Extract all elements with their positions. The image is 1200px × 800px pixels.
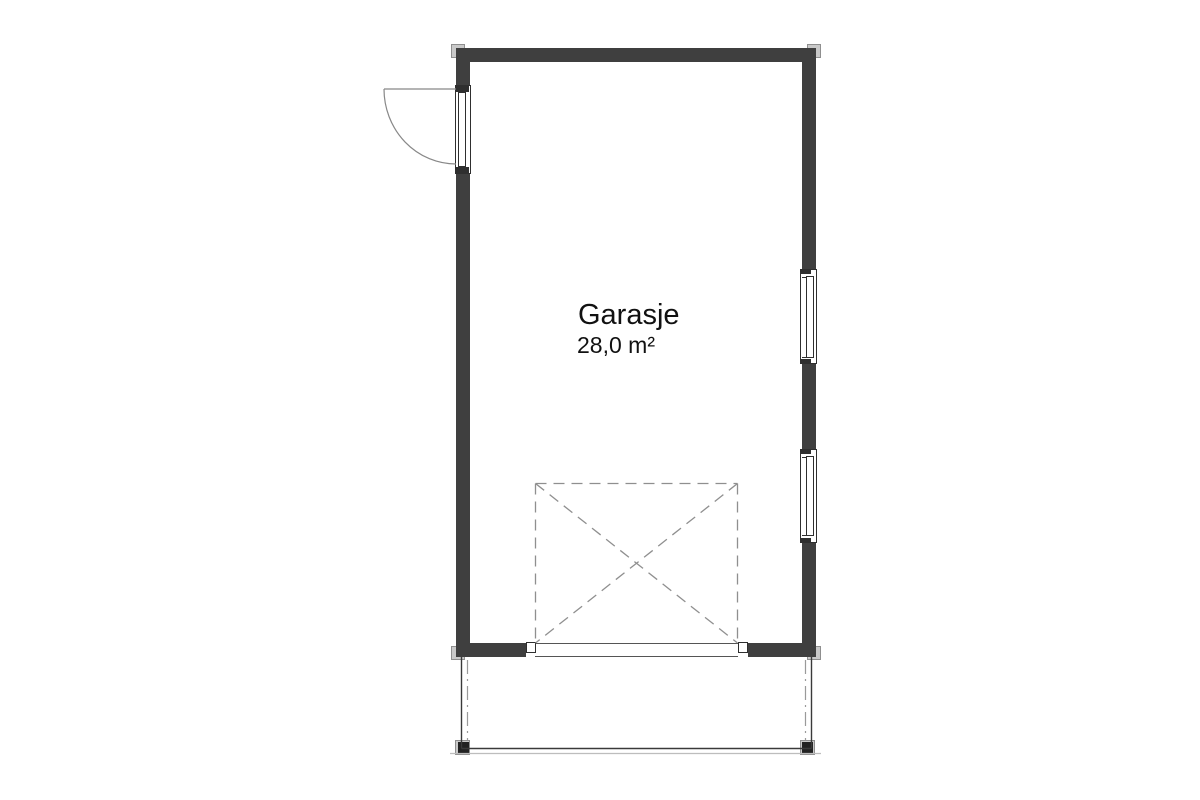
apron-outline [462,657,812,749]
wall-bottom-left-segment [456,643,526,657]
wall-top [456,48,816,62]
door-swing-arc [384,89,456,164]
window2-bottom-cap [801,538,811,542]
wall-bottom-right-segment [748,643,816,657]
room-name-label: Garasje [578,301,680,330]
canopy-post-right [802,742,813,753]
room-area-label: 28,0 m² [577,334,655,357]
garage-door-dashed-box [536,484,738,644]
entry-door-leaf [458,92,466,167]
garage-door-dashed-x [536,484,738,644]
wall-left-above-door [456,48,470,85]
entry-door-sill-cap [456,167,469,173]
wall-left-below-door [456,174,470,657]
linework-overlay [0,0,1200,800]
wall-right-above-window1 [802,48,816,269]
garage-door-jamb-left [526,642,536,653]
canopy-post-left [458,742,469,753]
window1-bottom-cap [801,359,811,363]
floor-plan-canvas: Garasje 28,0 m² [0,0,1200,800]
wall-right-below-window2 [802,543,816,657]
window1-top-cap [801,270,811,274]
window2-glazing [806,456,814,536]
garage-door-threshold [535,643,738,657]
wall-right-between-windows [802,364,816,449]
window2-top-cap [801,450,811,454]
garage-door-jamb-right [738,642,748,653]
window1-glazing [806,276,814,358]
